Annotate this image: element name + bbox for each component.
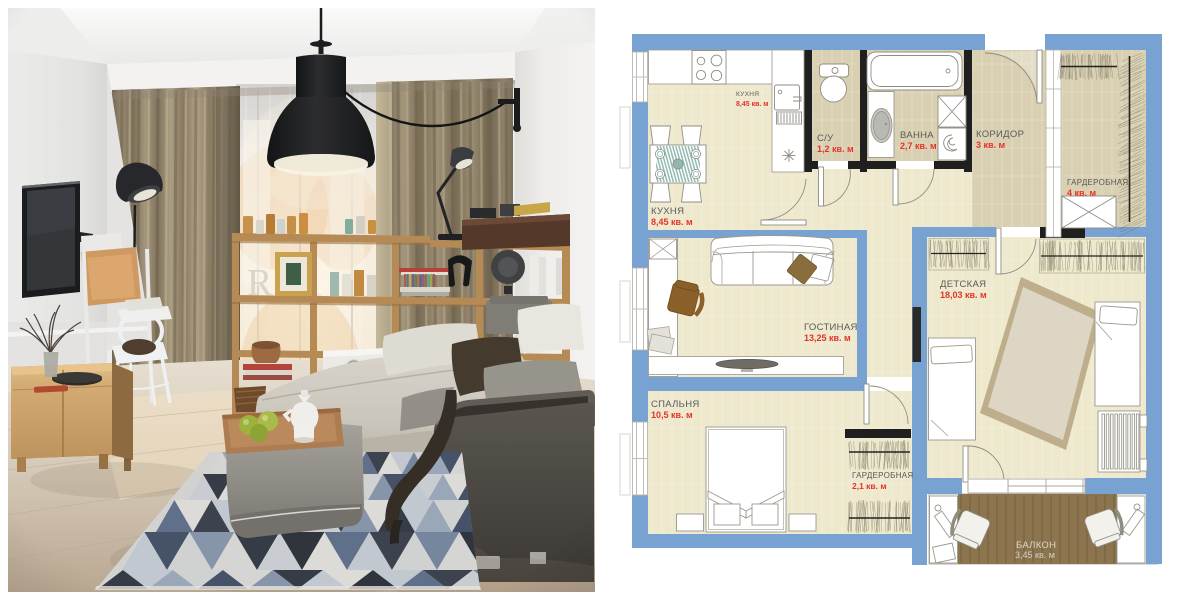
- svg-text:2,7 кв. м: 2,7 кв. м: [900, 141, 937, 151]
- svg-text:18,03 кв. м: 18,03 кв. м: [940, 290, 987, 300]
- svg-text:8,45 кв. м: 8,45 кв. м: [736, 101, 768, 108]
- svg-text:ДЕТСКАЯ: ДЕТСКАЯ: [940, 279, 986, 290]
- svg-text:13,25 кв. м: 13,25 кв. м: [804, 333, 851, 343]
- svg-text:ГАРДЕРОБНАЯ: ГАРДЕРОБНАЯ: [1067, 178, 1129, 187]
- svg-text:1,2 кв. м: 1,2 кв. м: [817, 144, 854, 154]
- svg-text:СПАЛЬНЯ: СПАЛЬНЯ: [651, 399, 700, 410]
- svg-text:ВАННА: ВАННА: [900, 130, 934, 141]
- svg-text:ГОСТИНАЯ: ГОСТИНАЯ: [804, 322, 858, 333]
- svg-text:ГАРДЕРОБНАЯ: ГАРДЕРОБНАЯ: [852, 471, 914, 480]
- svg-text:С/У: С/У: [817, 133, 834, 144]
- svg-text:КУХНЯ: КУХНЯ: [736, 91, 759, 98]
- svg-text:10,5 кв. м: 10,5 кв. м: [651, 410, 693, 420]
- svg-text:3,45 кв. м: 3,45 кв. м: [1015, 550, 1055, 560]
- svg-text:2,1 кв. м: 2,1 кв. м: [852, 481, 887, 491]
- svg-text:4 кв. м: 4 кв. м: [1067, 188, 1097, 198]
- svg-text:КУХНЯ: КУХНЯ: [651, 206, 684, 217]
- svg-text:8,45 кв. м: 8,45 кв. м: [651, 217, 693, 227]
- svg-text:КОРИДОР: КОРИДОР: [976, 129, 1024, 140]
- svg-text:3 кв. м: 3 кв. м: [976, 140, 1006, 150]
